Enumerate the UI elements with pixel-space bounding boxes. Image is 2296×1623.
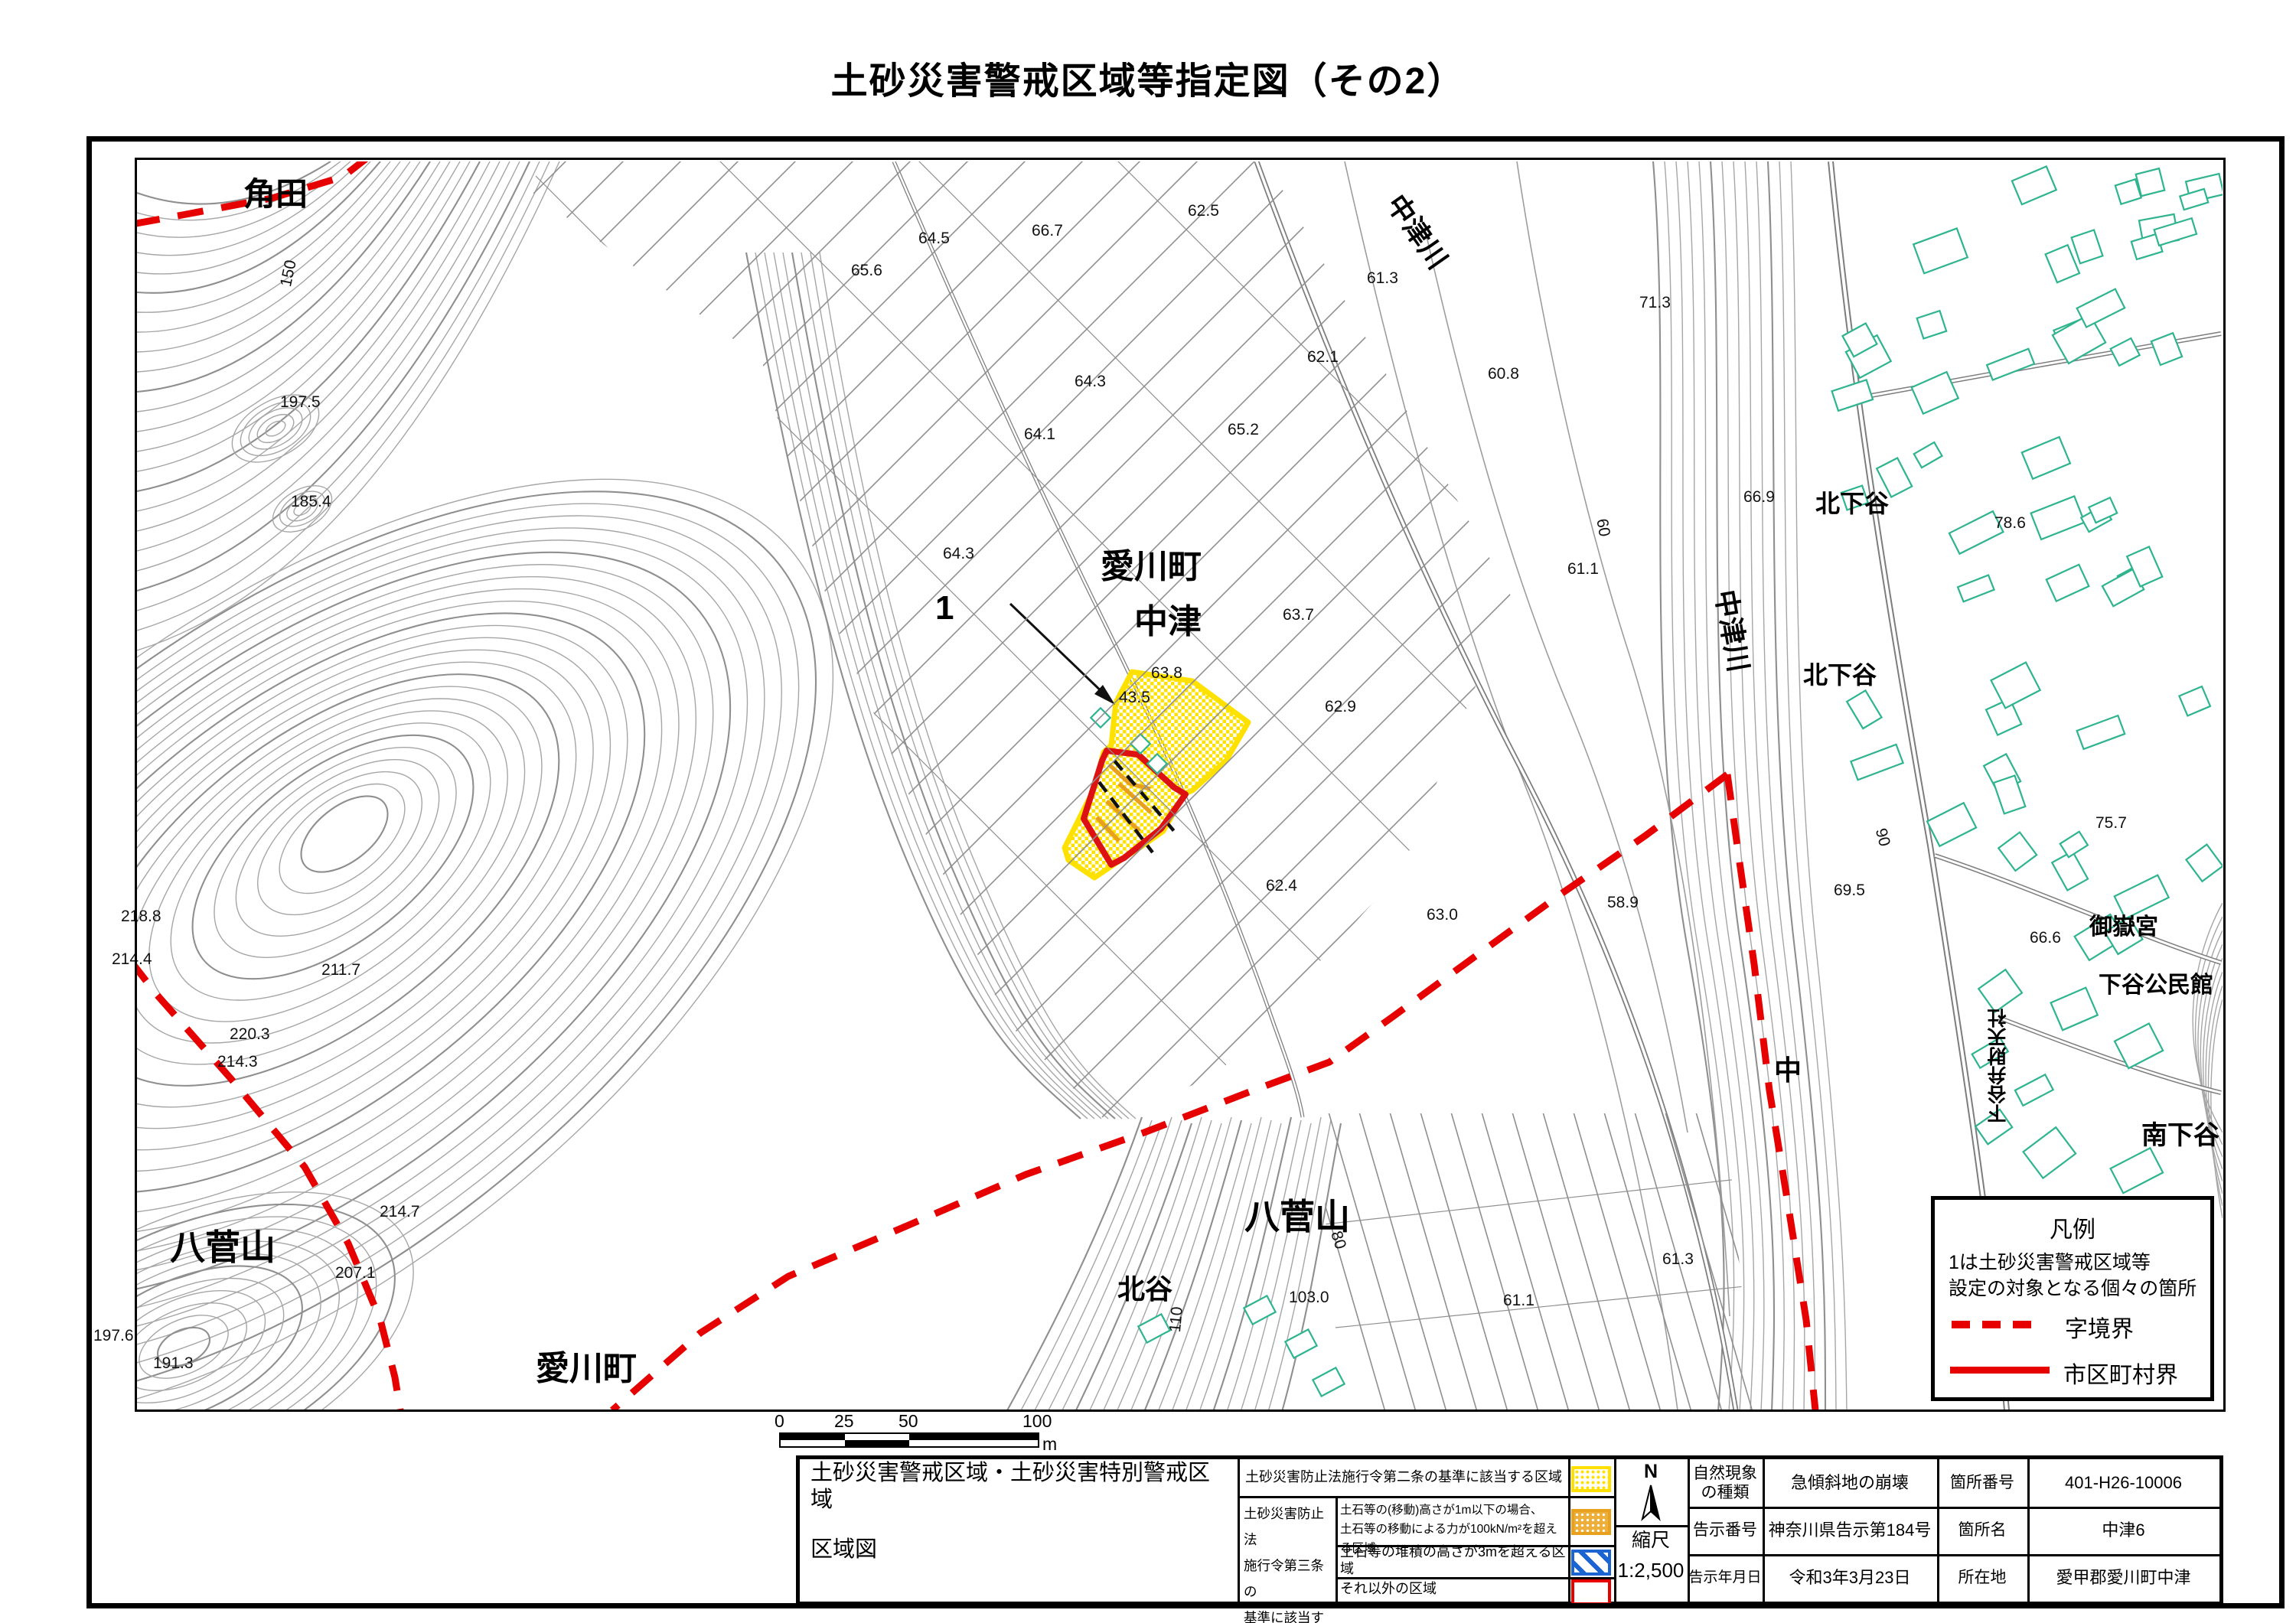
scale-bar-segment [781, 1440, 845, 1446]
legend-box: 凡例 1は土砂災害警戒区域等 設定の対象となる個々の箇所 字境界 市区町村界 [1931, 1196, 2214, 1401]
scale-bar-segment [845, 1434, 909, 1440]
other-area-swatch [1571, 1579, 1611, 1605]
legend-solid-label: 市区町村界 [2063, 1356, 2178, 1390]
info-row-value2: 愛甲郡愛川町中津 [2027, 1554, 2219, 1602]
table-separator [1568, 1459, 1570, 1602]
info-row-label: 自然現象の種類 [1688, 1459, 1763, 1507]
info-row-label2: 箇所名 [1937, 1507, 2027, 1554]
info-row-label2: 所在地 [1937, 1554, 2027, 1602]
scale-bar-segments [779, 1432, 1039, 1448]
north-label: N [1614, 1461, 1688, 1482]
info-row-label: 告示番号 [1688, 1507, 1763, 1554]
legend-row2-desc: 土石等の(移動)高さが1m以下の場合、 土石等の移動による力が100kN/m²を… [1340, 1501, 1567, 1543]
legend-row4-desc: それ以外の区域 [1340, 1579, 1567, 1600]
scale-bar-tick: 100 [1022, 1411, 1052, 1432]
scale-bar-tick: 25 [834, 1411, 854, 1432]
deposit-height-swatch [1571, 1550, 1611, 1576]
scale-bar-tick: 50 [899, 1411, 918, 1432]
table-separator [1238, 1459, 1240, 1602]
legend-note-line2: 設定の対象となる個々の箇所 [1949, 1273, 2197, 1301]
legend-dashed-label: 字境界 [2065, 1310, 2134, 1344]
legend-row3-desc: 土石等の堆積の高さが3mを超える区域 [1340, 1546, 1567, 1576]
info-row-value2: 中津6 [2027, 1507, 2219, 1554]
table-separator [1238, 1496, 1614, 1498]
info-row-label2: 箇所番号 [1937, 1459, 2027, 1507]
boundary-dashed-line-sample [1952, 1321, 2043, 1328]
scale-bar-unit: m [1042, 1434, 1057, 1455]
info-row-label: 告示年月日 [1688, 1554, 1763, 1602]
info-row-value: 急傾斜地の崩壊 [1763, 1459, 1937, 1507]
legend-article3-line: 基準に該当する [1244, 1605, 1334, 1623]
scale-label: 縮尺 [1614, 1528, 1688, 1553]
info-row-value: 神奈川県告示第184号 [1763, 1507, 1937, 1554]
warning-area-swatch [1571, 1466, 1611, 1492]
legend-row2-line1: 土石等の(移動)高さが1m以下の場合、 [1340, 1501, 1567, 1520]
scale-bar-segment [845, 1440, 909, 1446]
table-separator [1614, 1525, 1688, 1527]
scale-bar-segment [781, 1434, 845, 1440]
map-sheet-title-line2: 区域図 [810, 1533, 1040, 1566]
info-row-value2: 401-H26-10006 [2027, 1459, 2219, 1507]
scale-bar-segment [909, 1434, 1038, 1440]
legend-note-line1: 1は土砂災害警戒区域等 [1949, 1247, 2151, 1275]
debris-force-swatch [1571, 1509, 1611, 1535]
boundary-solid-line-sample [1950, 1367, 2050, 1374]
scale-bar: m 02550100 [779, 1411, 1085, 1452]
scale-value: 1:2,500 [1614, 1556, 1688, 1586]
page: 土砂災害警戒区域等指定図（その2） 角田愛川町中津中津川中津川北下谷北下谷御嶽宮… [0, 0, 2296, 1623]
legend-article3-line: 施行令第三条の [1244, 1553, 1334, 1605]
page-title: 土砂災害警戒区域等指定図（その2） [0, 51, 2296, 104]
legend-title: 凡例 [1935, 1211, 2210, 1244]
table-separator [1336, 1496, 1338, 1602]
info-row-value: 令和3年3月23日 [1763, 1554, 1937, 1602]
scale-bar-segment [909, 1440, 1038, 1446]
legend-article2-label: 土砂災害防止法施行令第二条の基準に該当する区域 [1245, 1459, 1565, 1496]
map-sheet-title-line1: 土砂災害警戒区域・土砂災害特別警戒区域 [810, 1470, 1230, 1504]
legend-article3-label: 土砂災害防止法 施行令第三条の 基準に該当する 区域 [1244, 1501, 1334, 1602]
scale-bar-tick: 0 [775, 1411, 784, 1432]
legend-article3-line: 土砂災害防止法 [1244, 1501, 1334, 1553]
info-table: 土砂災害警戒区域・土砂災害特別警戒区域 区域図 土砂災害防止法施行令第二条の基準… [796, 1455, 2223, 1605]
north-arrow-icon [1640, 1484, 1662, 1522]
